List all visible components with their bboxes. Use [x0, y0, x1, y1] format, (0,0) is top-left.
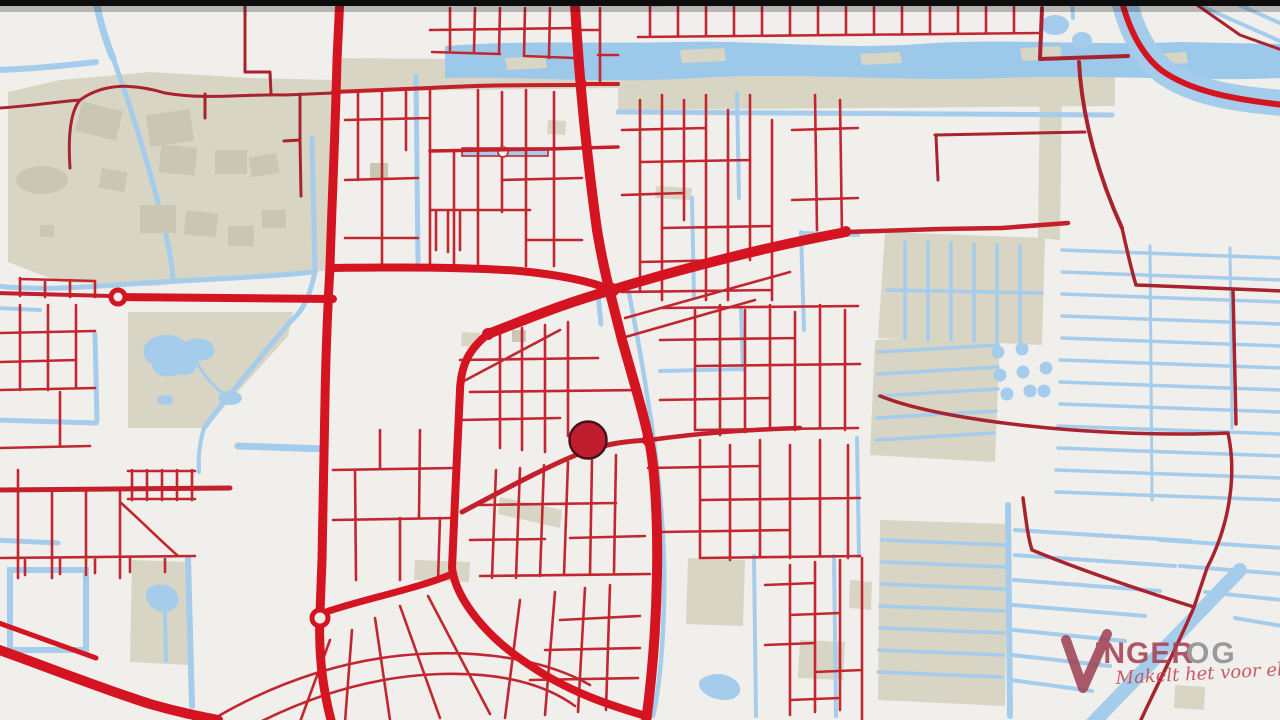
city-map[interactable]: INGER OG Makelt het voor elkaar! [0, 0, 1280, 720]
map-screen: INGER OG Makelt het voor elkaar! [0, 0, 1280, 720]
roundabout-west [111, 290, 125, 304]
location-marker[interactable] [570, 422, 607, 459]
roundabout-south [312, 610, 328, 626]
letterbox-top [0, 0, 1280, 12]
